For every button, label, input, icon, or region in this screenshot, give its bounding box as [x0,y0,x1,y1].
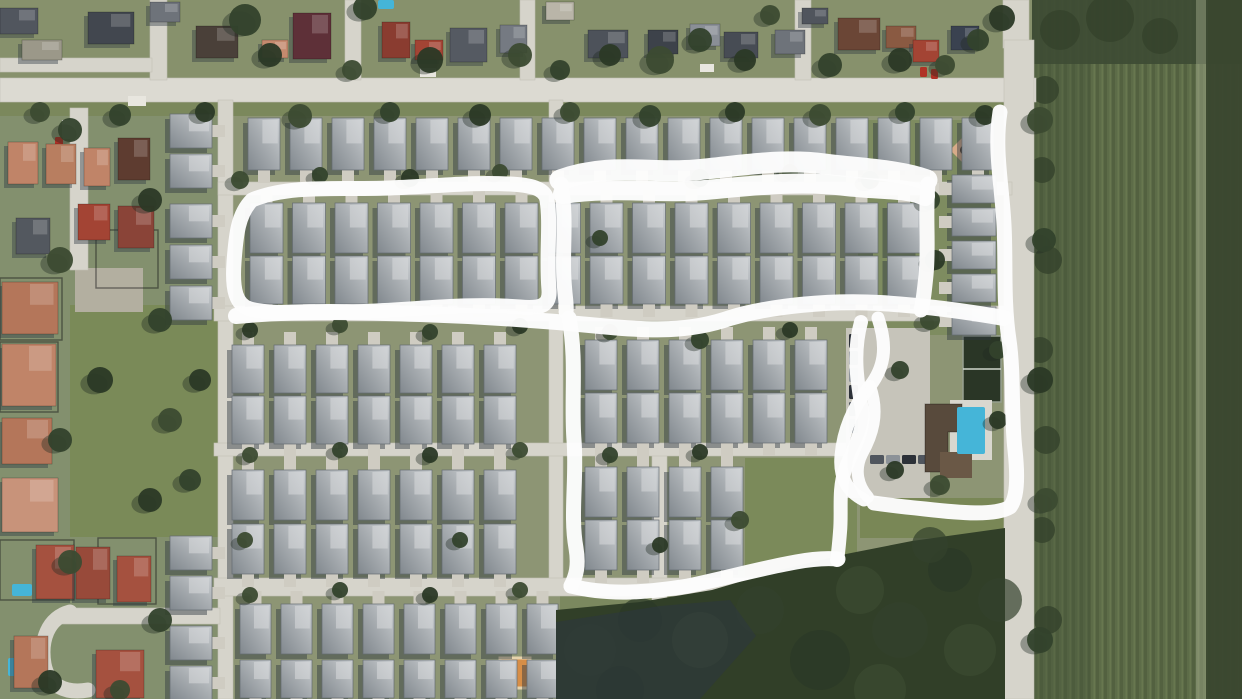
tree [760,5,780,25]
roof-ridge [288,398,303,420]
driveway [368,332,380,345]
house [481,660,517,699]
driveway [284,444,296,457]
tree [258,43,282,67]
roof-ridge [372,347,387,369]
roof-ridge [725,342,740,365]
driveway [258,170,270,183]
driveway [452,444,464,457]
driveway [212,637,225,649]
roof-ridge [396,24,408,38]
shed [128,96,146,106]
old-house [12,218,50,258]
roof-ridge [663,32,676,42]
tree [179,469,201,491]
house [269,524,306,587]
roof-ridge [641,342,656,365]
house [358,660,394,699]
house [664,520,701,583]
roof-ridge [809,395,824,418]
driveway [373,591,385,604]
roof-ridge [336,662,351,679]
annotation-stroke [921,184,928,310]
tree [731,511,749,529]
house [440,660,476,699]
driveway [763,443,775,456]
driveway [284,332,296,345]
tree [242,587,258,603]
roof-ridge [725,469,740,492]
roof-ridge [288,472,303,495]
roof-ridge [683,522,698,545]
driveway [939,216,952,228]
roof-ridge [19,10,35,20]
roof-ridge [27,420,48,438]
backyard-pool [378,0,394,9]
woods-tree [978,578,1022,622]
roof-ridge [388,120,403,143]
roof-ridge [599,522,614,545]
tree [138,488,162,512]
driveway [805,327,817,340]
roof-ridge [520,258,536,280]
tree [734,49,756,71]
tree [646,46,674,74]
roof-ridge [414,472,429,495]
woods-tree [790,630,850,690]
roof-ridge [972,243,993,256]
tree [1027,627,1053,653]
house [479,396,516,457]
driveway [601,304,613,317]
old-house [42,144,76,188]
woods-tree [944,624,996,676]
field-band [1206,0,1242,699]
annotation-stroke [569,318,577,586]
house [353,524,390,587]
driveway [686,304,698,317]
roof-ridge [189,628,209,643]
roof-ridge [265,205,281,228]
driveway [805,443,817,456]
tree [452,532,468,548]
roof-ridge [377,606,392,629]
tree [422,587,438,603]
roof-ridge [732,258,748,280]
roof-ridge [605,205,621,228]
tree [138,188,162,212]
tree [989,411,1007,429]
roof-ridge [859,20,877,33]
old-house [0,344,56,410]
house [706,393,743,456]
roof-ridge [647,205,663,228]
tree [512,442,528,458]
roof-ridge [392,258,408,280]
house [522,660,558,699]
tree [782,322,798,338]
house [311,524,348,587]
roof-ridge [599,342,614,365]
roof-ridge [456,398,471,420]
roof-ridge [265,258,281,280]
house [585,256,623,317]
roof-ridge [435,205,451,228]
driveway [494,574,506,587]
driveway [212,547,225,559]
house [628,256,666,317]
tree [725,102,745,122]
driveway [494,457,506,470]
roof-ridge [330,526,345,549]
roof-ridge [307,258,323,280]
roof-ridge [902,258,918,280]
roof-ridge [498,398,513,420]
tree [380,102,400,122]
tree [550,60,570,80]
tree [87,367,113,393]
grass-patch [75,268,143,312]
old-house [0,478,58,536]
tree [599,44,621,66]
house [243,118,280,183]
roof-ridge [498,526,513,549]
roof-ridge [94,206,107,220]
roof-ridge [418,606,433,629]
roof-ridge [541,662,556,679]
roof-ridge [372,526,387,549]
roof-ridge [972,276,993,289]
roof-ridge [42,42,59,50]
roof-ridge [30,284,54,305]
old-house [0,282,58,338]
tree [242,447,258,463]
roof-ridge [254,662,269,679]
roof-ridge [61,146,74,162]
roof-ridge [860,258,876,280]
tree [930,475,950,495]
field-tree [1040,10,1080,50]
roof-ridge [817,205,833,228]
driveway [494,332,506,345]
roof-ridge [29,346,52,371]
driveway [595,570,607,583]
roof-ridge [514,120,529,143]
roof-ridge [246,398,261,420]
roof-ridge [189,156,209,171]
driveway [212,256,225,268]
tree [237,532,253,548]
tree [886,461,904,479]
parked-car [902,455,916,464]
roof-ridge [414,347,429,369]
driveway [455,591,467,604]
roof-ridge [435,258,451,280]
driveway [410,574,422,587]
tree [332,442,348,458]
tree [818,53,842,77]
house [437,396,474,457]
roof-ridge [477,258,493,280]
roof-ridge [766,120,781,143]
roof-ridge [514,27,525,38]
tree [229,4,261,36]
tree [1027,107,1053,133]
driveway [284,574,296,587]
driveway [473,190,485,203]
roof-ridge [262,120,277,143]
roof-ridge [647,258,663,280]
tree [1034,488,1058,512]
old-house [0,8,38,38]
driveway [284,457,296,470]
tree [1032,228,1056,252]
roof-ridge [934,120,949,143]
roof-ridge [605,258,621,280]
roof-ridge [254,606,269,629]
driveway [368,574,380,587]
roof-ridge [456,472,471,495]
backyard-pool [12,584,32,596]
tree [935,55,955,75]
roof-ridge [111,14,130,27]
tree [47,247,73,273]
roof-ridge [350,205,366,228]
house [622,393,659,456]
roof-ridge [134,140,147,157]
tree [888,48,912,72]
driveway [637,570,649,583]
roof-ridge [732,205,748,228]
tree [48,428,72,452]
roof-ridge [93,549,107,570]
driveway [496,591,508,604]
roof-ridge [456,347,471,369]
house [399,660,435,699]
roof-ridge [641,469,656,492]
tree [58,118,82,142]
roof-ridge [392,205,408,228]
roof-ridge [23,144,36,161]
roof-ridge [608,32,625,43]
roof-ridge [189,206,209,221]
old-house [113,556,151,606]
roof-ridge [790,32,803,42]
tree [989,5,1015,31]
driveway [939,282,952,294]
annotated-aerial-screenshot: Satellite aerial view of a residential s… [0,0,1242,699]
tree [38,670,62,694]
roof-ridge [498,472,513,495]
tree [148,308,172,332]
parked-car [870,455,884,464]
roof-ridge [683,469,698,492]
tree [560,102,580,122]
tree [688,28,712,52]
old-house [4,142,38,188]
roof-ridge [134,558,148,576]
house [479,524,516,587]
tree [189,369,211,391]
roof-ridge [775,258,791,280]
red-car [920,67,927,77]
tree [692,444,708,460]
tree [809,104,831,126]
roof-ridge [477,205,493,228]
roof-ridge [189,668,209,683]
roof-ridge [598,120,613,143]
tree [231,171,249,189]
field-tree [1142,18,1178,54]
driveway [637,454,649,467]
driveway [721,454,733,467]
driveway [368,444,380,457]
roof-ridge [414,398,429,420]
roof-ridge [246,472,261,495]
old-house [771,30,805,58]
driveway [452,332,464,345]
old-house [378,22,410,62]
aerial-map [0,0,1242,699]
roof-ridge [189,538,209,553]
driveway [212,677,225,689]
house [670,256,708,317]
old-house [446,28,487,66]
roof-ridge [520,205,536,228]
roof-ridge [498,347,513,369]
tree [602,447,618,463]
tree [469,104,491,126]
roof-ridge [246,347,261,369]
house [580,520,617,583]
roof-ridge [459,662,474,679]
roof-ridge [372,398,387,420]
annotation-stroke [563,183,925,196]
roof-ridge [189,578,209,593]
tree [967,29,989,51]
roof-ridge [817,258,833,280]
house [276,660,312,699]
tree [592,230,608,246]
roof-ridge [599,395,614,418]
house [790,393,827,456]
tree [417,47,443,73]
tree [288,104,312,128]
tree [195,102,215,122]
field-tree [1032,426,1060,454]
roof-ridge [377,662,392,679]
roof-ridge [541,606,556,629]
driveway [643,304,655,317]
old-house [80,148,110,190]
tree [312,167,328,183]
house [957,118,994,183]
roof-ridge [97,150,108,165]
roof-ridge [500,662,515,679]
roof-ridge [767,395,782,418]
house [227,396,264,457]
roof-ridge [725,395,740,418]
roof-ridge [372,472,387,495]
driveway [939,183,952,195]
roof-ridge [350,258,366,280]
roof-ridge [767,342,782,365]
old-house [114,138,150,184]
roof-ridge [189,288,209,303]
grass-patch [0,100,1036,116]
annotation-stroke [561,184,566,312]
tree [891,361,909,379]
roof-ridge [901,28,914,37]
clubhouse-wing [940,452,972,478]
roof-ridge [120,652,140,671]
driveway [212,165,225,177]
tree [342,60,362,80]
roof-ridge [560,4,572,11]
tree [512,582,528,598]
swimming-pool [957,407,985,454]
tree [422,447,438,463]
old-house [834,18,880,54]
roof-ridge [500,606,515,629]
roof-ridge [850,120,865,143]
woods-tree [836,566,884,614]
roof-ridge [741,34,755,44]
roof-ridge [165,4,178,12]
roof-ridge [459,606,474,629]
tree [332,582,348,598]
roof-ridge [336,606,351,629]
roof-ridge [683,395,698,418]
house [353,396,390,457]
roof-ridge [809,342,824,365]
road-segment [0,78,1036,102]
roof-ridge [33,220,47,234]
roof-ridge [641,395,656,418]
roof-ridge [414,526,429,549]
roof-ridge [312,15,328,33]
house [580,393,617,456]
driveway [212,125,225,137]
roof-ridge [418,662,433,679]
house [453,118,490,183]
tree [652,537,668,553]
roof-ridge [430,120,445,143]
tree [30,102,50,122]
tree [158,408,182,432]
roof-ridge [690,205,706,228]
roof-ridge [972,177,993,190]
driveway [212,297,225,309]
roof-ridge [682,120,697,143]
roof-ridge [189,247,209,262]
roof-ridge [288,526,303,549]
house [269,396,306,457]
driveway [291,591,303,604]
roof-ridge [330,398,345,420]
tree [639,105,661,127]
driveway [763,327,775,340]
roof-ridge [330,347,345,369]
old-house [289,13,331,63]
roof-ridge [469,30,485,44]
old-house [74,204,110,244]
house [235,660,271,699]
woods-tree [912,527,948,563]
roof-ridge [972,210,993,223]
roof-ridge [599,469,614,492]
tree [109,104,131,126]
